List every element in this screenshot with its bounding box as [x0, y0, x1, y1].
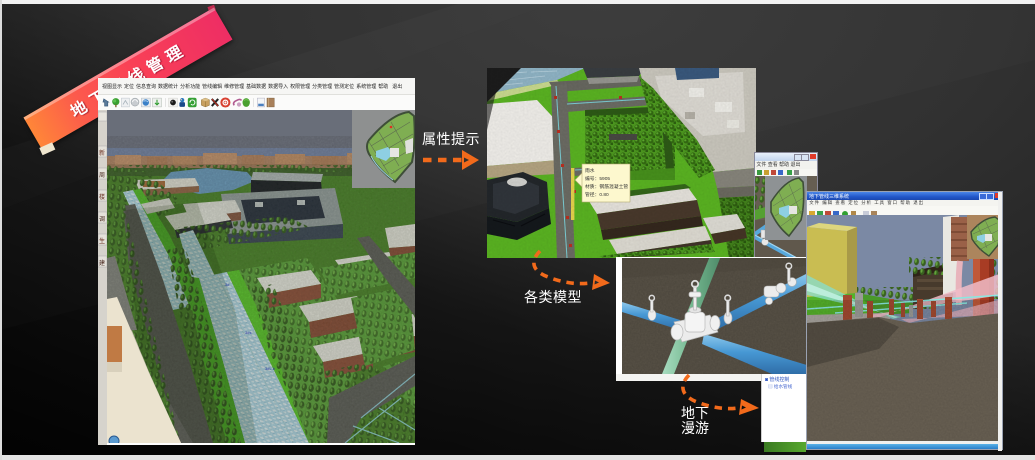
svg-text:编号：5905: 编号：5905 — [585, 175, 610, 182]
svg-text:生: 生 — [99, 237, 105, 245]
svg-text:调: 调 — [99, 215, 105, 223]
svg-text:楼: 楼 — [99, 193, 105, 201]
svg-text:建: 建 — [99, 259, 105, 267]
svg-text:新: 新 — [99, 149, 105, 157]
svg-text:周: 周 — [99, 172, 105, 179]
svg-text:雨水: 雨水 — [585, 167, 595, 174]
svg-text:材质：钢筋混凝土管: 材质：钢筋混凝土管 — [585, 183, 628, 190]
svg-text:管径：0.80: 管径：0.80 — [585, 191, 609, 198]
